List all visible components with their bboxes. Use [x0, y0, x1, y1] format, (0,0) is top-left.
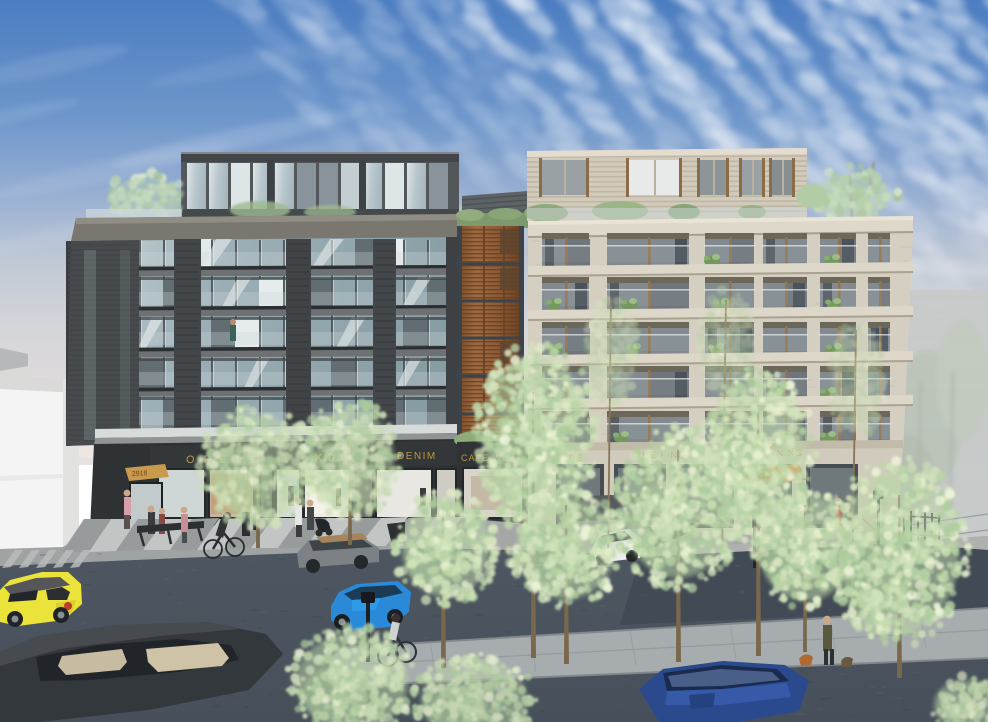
svg-text:2918: 2918	[132, 470, 148, 478]
svg-text:DENIM: DENIM	[397, 451, 437, 462]
